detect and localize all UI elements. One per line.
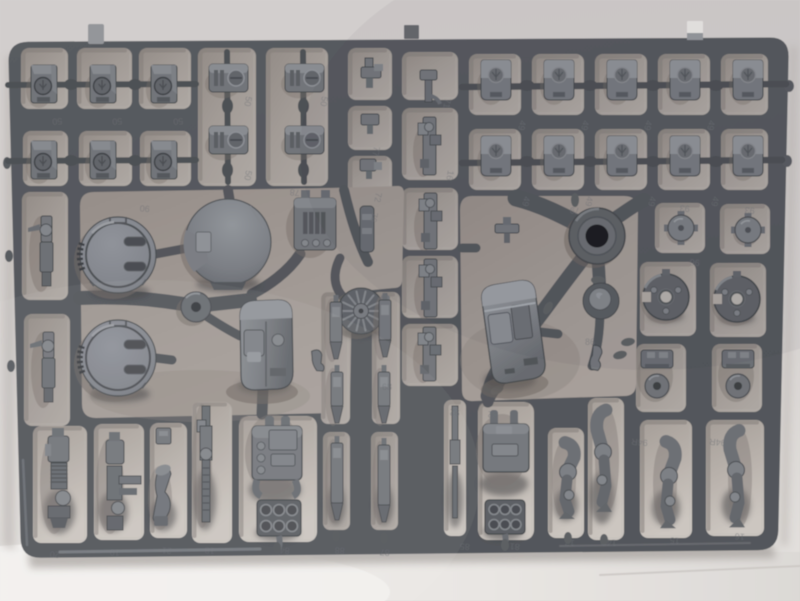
svg-text:68: 68 [382, 382, 392, 392]
svg-text:49: 49 [520, 196, 532, 208]
svg-text:49: 49 [579, 120, 591, 132]
svg-text:94R: 94R [630, 437, 648, 448]
svg-text:50: 50 [242, 96, 254, 108]
svg-text:72: 72 [372, 192, 384, 204]
svg-text:16: 16 [734, 531, 745, 542]
svg-text:50: 50 [242, 170, 254, 182]
svg-text:71: 71 [441, 98, 453, 110]
svg-text:49: 49 [709, 196, 721, 208]
svg-text:84: 84 [279, 545, 290, 556]
svg-text:49: 49 [583, 196, 595, 208]
svg-text:86: 86 [585, 337, 595, 347]
svg-text:93: 93 [744, 205, 755, 216]
svg-text:90: 90 [139, 203, 150, 214]
svg-text:82: 82 [487, 409, 498, 420]
svg-text:88: 88 [334, 545, 345, 556]
svg-text:81: 81 [509, 541, 520, 552]
svg-text:16: 16 [444, 170, 456, 182]
svg-text:78: 78 [289, 187, 300, 198]
svg-text:94R: 94R [708, 437, 726, 448]
svg-text:79: 79 [569, 205, 580, 216]
svg-text:76: 76 [368, 212, 380, 224]
svg-text:50: 50 [318, 96, 330, 108]
svg-text:20: 20 [49, 549, 60, 560]
svg-text:50: 50 [52, 116, 63, 127]
svg-text:49: 49 [646, 196, 658, 208]
svg-text:50: 50 [173, 116, 184, 127]
svg-text:92: 92 [449, 407, 460, 418]
svg-text:87: 87 [379, 547, 390, 558]
svg-text:49: 49 [642, 120, 654, 132]
svg-text:50: 50 [112, 116, 123, 127]
svg-text:14: 14 [606, 537, 617, 548]
svg-text:93: 93 [679, 203, 690, 214]
svg-text:77: 77 [370, 146, 382, 158]
svg-text:85: 85 [459, 541, 470, 552]
svg-text:49: 49 [705, 120, 717, 132]
svg-text:96: 96 [689, 257, 700, 268]
svg-text:49: 49 [516, 120, 528, 132]
